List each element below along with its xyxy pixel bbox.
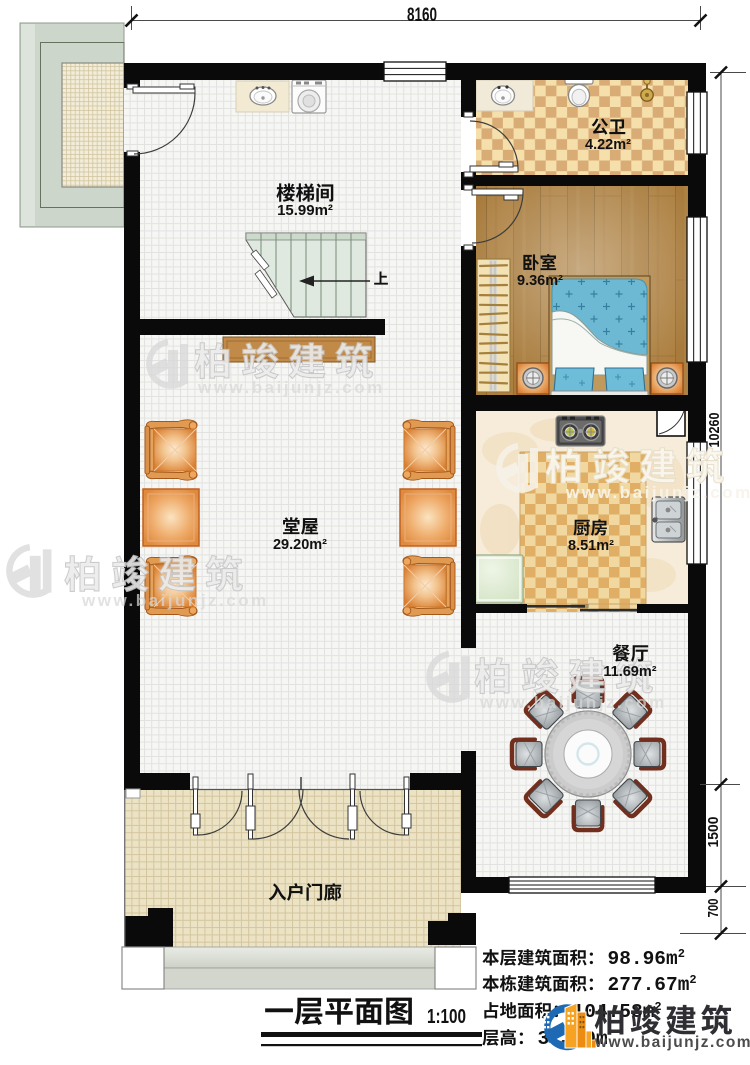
svg-text:www.baijunjz.com: www.baijunjz.com xyxy=(81,591,269,610)
svg-text:4.22m²: 4.22m² xyxy=(585,137,631,153)
svg-text:29.20m²: 29.20m² xyxy=(273,537,327,553)
svg-text:www.baijunjz.com: www.baijunjz.com xyxy=(594,1034,750,1051)
svg-text:98.96m2: 98.96m2 xyxy=(608,947,685,970)
svg-text:9.36m²: 9.36m² xyxy=(517,273,563,289)
svg-text:8.51m²: 8.51m² xyxy=(568,538,614,554)
svg-text:10260: 10260 xyxy=(706,413,723,448)
svg-text:1500: 1500 xyxy=(705,817,722,848)
svg-text:1:100: 1:100 xyxy=(427,1006,466,1028)
svg-text:www.baijunjz.com: www.baijunjz.com xyxy=(479,693,667,712)
svg-text:277.67m2: 277.67m2 xyxy=(608,973,697,996)
svg-text:8160: 8160 xyxy=(407,5,437,26)
svg-text:11.69m²: 11.69m² xyxy=(603,664,656,680)
svg-text:www.baijunjz.com: www.baijunjz.com xyxy=(197,378,385,397)
svg-text:www.baijunjz.com: www.baijunjz.com xyxy=(565,483,750,502)
svg-text:700: 700 xyxy=(705,899,722,918)
svg-text:15.99m²: 15.99m² xyxy=(277,202,333,219)
